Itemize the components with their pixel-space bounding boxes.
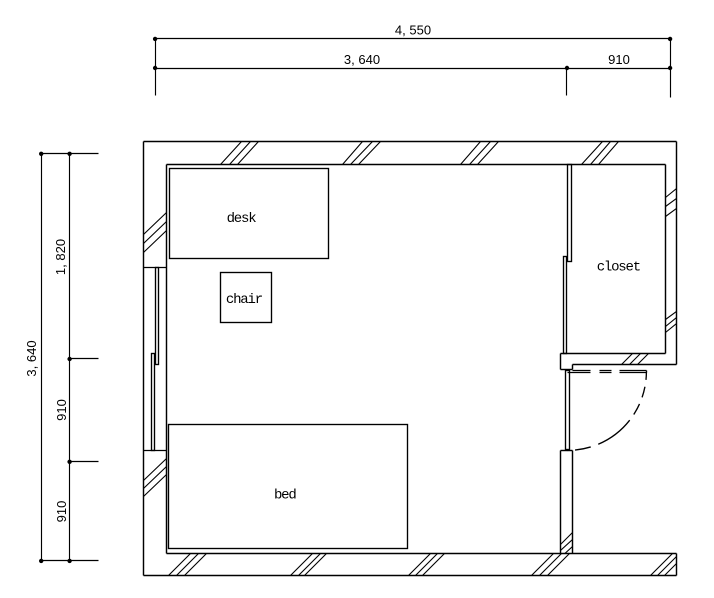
svg-text:chair: chair — [226, 292, 263, 308]
svg-text:910: 910 — [54, 501, 69, 523]
svg-text:4, 550: 4, 550 — [395, 22, 431, 37]
svg-text:closet: closet — [597, 260, 640, 276]
svg-text:910: 910 — [608, 52, 630, 67]
svg-text:1, 820: 1, 820 — [53, 239, 68, 275]
svg-text:bed: bed — [274, 487, 296, 503]
svg-text:desk: desk — [227, 211, 257, 227]
svg-text:910: 910 — [54, 399, 69, 421]
svg-text:3, 640: 3, 640 — [24, 340, 39, 376]
svg-text:3, 640: 3, 640 — [344, 52, 380, 67]
